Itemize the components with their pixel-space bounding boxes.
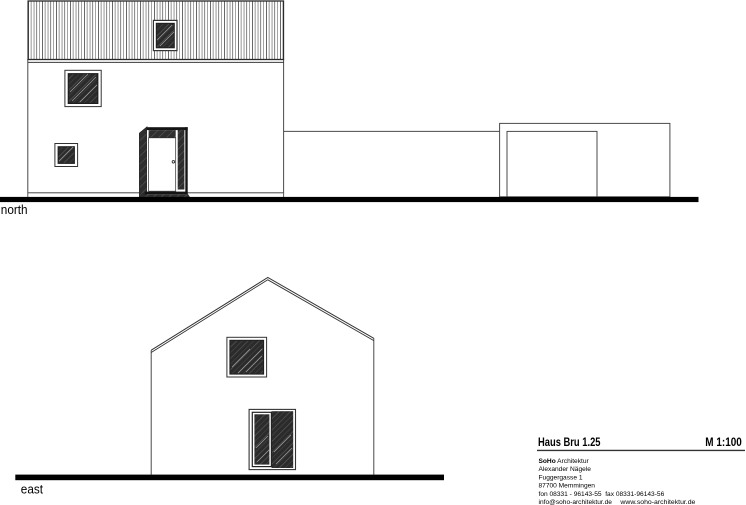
svg-text:Haus Bru 1.25: Haus Bru 1.25 <box>538 436 601 449</box>
svg-text:Alexander Nägele: Alexander Nägele <box>539 466 592 473</box>
svg-text:M 1:100: M 1:100 <box>705 436 742 449</box>
svg-text:Fuggergasse 1: Fuggergasse 1 <box>539 474 583 481</box>
svg-text:SoHo Architektur: SoHo Architektur <box>539 458 590 465</box>
svg-text:87700 Memmingen: 87700 Memmingen <box>539 483 596 490</box>
svg-text:info@soho-architektur.dewww.so: info@soho-architektur.dewww.soho-archite… <box>539 499 696 505</box>
svg-text:east: east <box>21 482 44 496</box>
svg-text:north: north <box>1 203 28 217</box>
svg-text:fon 08331 - 96143-55 fax 0833: fon 08331 - 96143-55 fax 08331-96143-56 <box>539 491 665 498</box>
